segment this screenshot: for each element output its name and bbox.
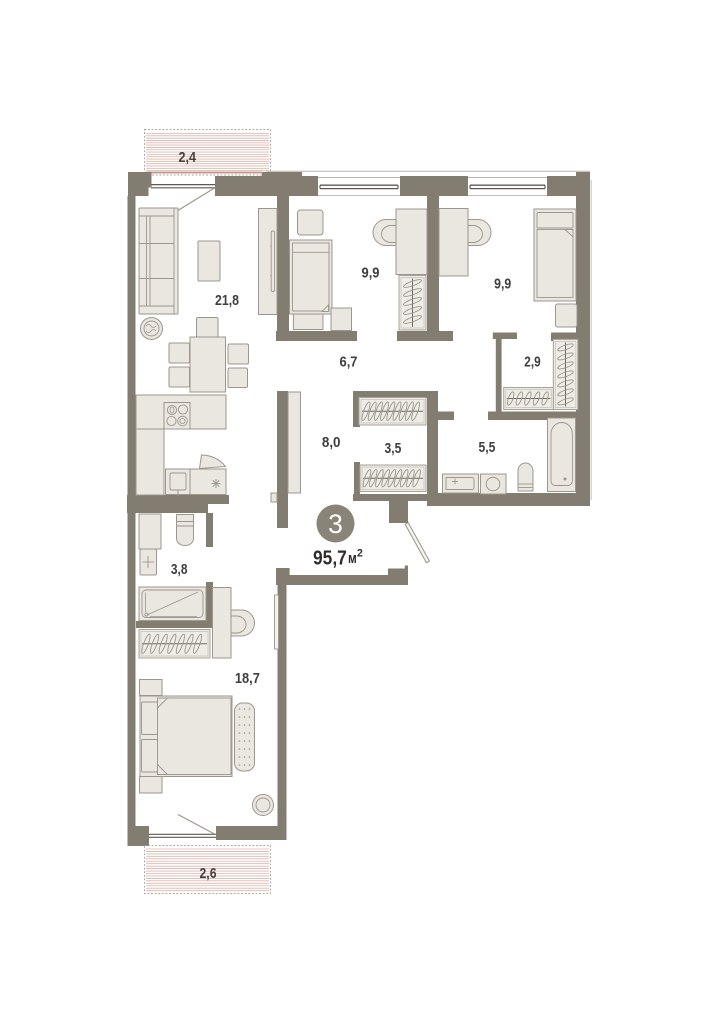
svg-text:2,9: 2,9 xyxy=(524,354,540,371)
svg-text:3,5: 3,5 xyxy=(385,440,402,457)
svg-text:3: 3 xyxy=(328,509,343,539)
svg-text:95,7: 95,7 xyxy=(313,547,347,570)
svg-text:9,9: 9,9 xyxy=(494,276,511,293)
svg-text:3,8: 3,8 xyxy=(171,561,188,578)
svg-text:2: 2 xyxy=(357,548,363,560)
svg-text:9,9: 9,9 xyxy=(362,265,380,282)
svg-text:2,4: 2,4 xyxy=(179,149,197,166)
svg-text:5,5: 5,5 xyxy=(478,439,495,456)
svg-text:м: м xyxy=(348,551,357,567)
svg-text:2,6: 2,6 xyxy=(200,865,217,882)
svg-text:21,8: 21,8 xyxy=(215,292,239,309)
svg-text:6,7: 6,7 xyxy=(340,354,358,371)
svg-text:18,7: 18,7 xyxy=(235,670,260,687)
svg-text:8,0: 8,0 xyxy=(322,434,341,451)
